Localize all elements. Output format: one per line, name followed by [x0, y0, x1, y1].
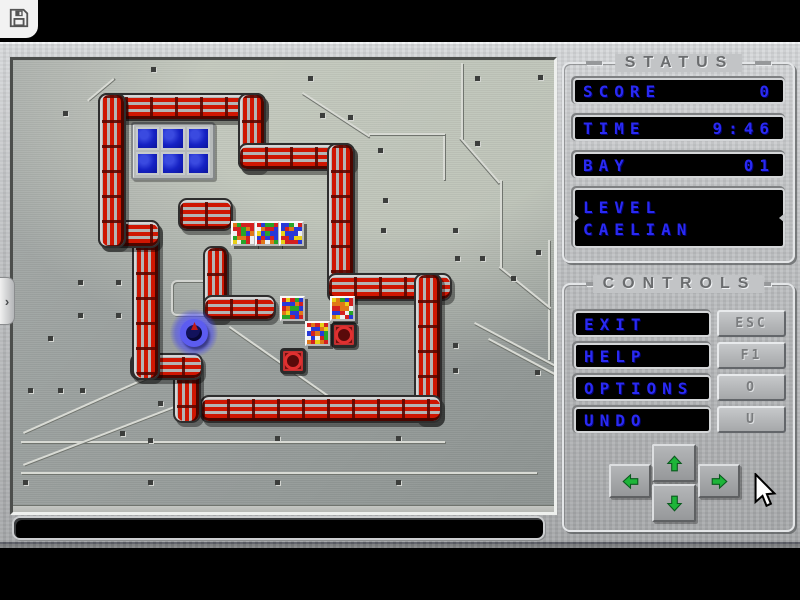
title-dash	[586, 61, 602, 65]
key-o[interactable]: O	[717, 374, 786, 401]
goal-glass-cell	[136, 152, 159, 175]
button-label: EXIT	[584, 315, 647, 334]
rivet	[381, 228, 386, 233]
game-window: › STATUS SCORE0TIME9:46BAY01 LEVEL CAELI…	[0, 42, 800, 548]
notch	[779, 213, 785, 223]
rivet	[48, 336, 53, 341]
crate-mosaic	[282, 298, 303, 319]
status-row-bay: BAY01	[573, 152, 785, 178]
rivet	[80, 388, 85, 393]
button-label: UNDO	[584, 411, 647, 430]
rivet	[453, 228, 458, 233]
target-pad	[331, 322, 357, 348]
wall-segment	[98, 93, 126, 248]
game-screen: › STATUS SCORE0TIME9:46BAY01 LEVEL CAELI…	[0, 0, 800, 600]
arrow-down-button[interactable]	[652, 484, 696, 522]
floor-seam	[23, 371, 161, 434]
message-bar	[12, 516, 545, 540]
floppy-disk-icon	[8, 7, 30, 32]
floor-seam	[21, 472, 537, 474]
floor-seam	[474, 322, 554, 371]
goal-glass-cell	[187, 127, 210, 150]
help-button[interactable]: HELP	[574, 343, 711, 369]
crate-mosaic	[233, 223, 254, 244]
arrow-left-icon	[622, 473, 639, 490]
key-esc[interactable]: ESC	[717, 310, 786, 337]
crate-mosaic	[332, 298, 353, 319]
wall-segment	[178, 198, 233, 231]
goal-glass-cell	[161, 127, 184, 150]
status-row-time: TIME9:46	[573, 115, 785, 141]
rivet	[116, 313, 121, 318]
status-label: SCORE	[583, 82, 661, 101]
rivet	[396, 436, 401, 441]
floor-seam	[499, 266, 552, 309]
button-label: OPTIONS	[584, 379, 693, 398]
rivet	[28, 388, 33, 393]
rivet	[383, 198, 388, 203]
status-title: STATUS	[615, 54, 743, 72]
rivet	[63, 111, 68, 116]
goal-glass-area	[131, 122, 215, 180]
crate	[231, 221, 256, 246]
floor-seam	[369, 133, 445, 135]
rivet	[455, 256, 460, 261]
crate	[280, 296, 305, 321]
rivet	[396, 480, 401, 485]
board-floor	[13, 60, 554, 512]
crate	[279, 221, 304, 246]
floor-seam	[461, 63, 463, 139]
rivet	[275, 436, 280, 441]
rivet	[275, 480, 280, 485]
arrow-up-button[interactable]	[652, 444, 696, 482]
status-label: BAY	[583, 156, 630, 175]
target-ring	[284, 352, 302, 370]
wall-segment	[203, 295, 276, 321]
crate	[305, 321, 330, 346]
wall-segment	[200, 395, 442, 423]
notch	[573, 213, 579, 223]
rivet	[151, 67, 156, 72]
game-board	[10, 57, 557, 515]
rivet	[78, 280, 83, 285]
controls-panel: CONTROLS EXITESCHELPF1OPTIONSOUNDOU	[562, 283, 795, 532]
save-button[interactable]	[0, 0, 38, 38]
goal-glass-cell	[136, 127, 159, 150]
rivet	[148, 480, 153, 485]
floor-seam	[548, 240, 550, 360]
undo-button[interactable]: UNDO	[574, 407, 711, 433]
crate	[255, 221, 280, 246]
drawer-tab[interactable]: ›	[0, 277, 15, 325]
goal-glass-cell	[187, 152, 210, 175]
status-value: 01	[744, 156, 775, 175]
button-label: HELP	[584, 347, 647, 366]
floor-seam	[23, 402, 184, 466]
level-name: CAELIAN	[583, 220, 692, 239]
arrow-right-button[interactable]	[698, 464, 740, 498]
crate-mosaic	[307, 323, 328, 344]
key-f1[interactable]: F1	[717, 342, 786, 369]
target-pad	[280, 348, 306, 374]
rivet	[116, 280, 121, 285]
options-button[interactable]: OPTIONS	[574, 375, 711, 401]
floor-band	[13, 506, 554, 512]
rivet	[308, 76, 313, 81]
rivet	[538, 75, 543, 80]
level-label: LEVEL	[583, 198, 661, 217]
rivet	[148, 438, 153, 443]
rivet	[480, 256, 485, 261]
rivet	[58, 388, 63, 393]
crate-mosaic	[281, 223, 302, 244]
crate	[330, 296, 355, 321]
rivet	[453, 343, 458, 348]
player	[177, 316, 211, 350]
controls-title: CONTROLS	[593, 275, 765, 293]
rivet	[453, 368, 458, 373]
status-label: TIME	[583, 119, 646, 138]
arrow-left-button[interactable]	[609, 464, 651, 498]
rivet	[378, 148, 383, 153]
status-panel: STATUS SCORE0TIME9:46BAY01 LEVEL CAELIAN	[562, 62, 795, 263]
arrow-down-icon	[666, 495, 683, 512]
rivet	[535, 370, 540, 375]
rivet	[23, 480, 28, 485]
rivet	[475, 141, 480, 146]
exit-button[interactable]: EXIT	[574, 311, 711, 337]
level-display: LEVEL CAELIAN	[573, 188, 785, 248]
floor-seam	[500, 180, 502, 268]
rivet	[158, 401, 163, 406]
status-value: 9:46	[712, 119, 775, 138]
key-u[interactable]: U	[717, 406, 786, 433]
rivet	[320, 113, 325, 118]
target-ring	[335, 326, 353, 344]
rivet	[511, 276, 516, 281]
floor-seam	[443, 134, 445, 180]
rivet	[536, 250, 541, 255]
rivet	[120, 431, 125, 436]
crate-mosaic	[257, 223, 278, 244]
status-row-score: SCORE0	[573, 78, 785, 104]
status-value: 0	[759, 82, 775, 101]
rivet	[475, 76, 480, 81]
title-dash	[755, 61, 771, 65]
arrow-up-icon	[666, 455, 683, 472]
rivet	[348, 115, 353, 120]
arrow-right-icon	[711, 473, 728, 490]
goal-glass-cell	[161, 152, 184, 175]
rivet	[78, 313, 83, 318]
floor-seam	[302, 92, 370, 137]
